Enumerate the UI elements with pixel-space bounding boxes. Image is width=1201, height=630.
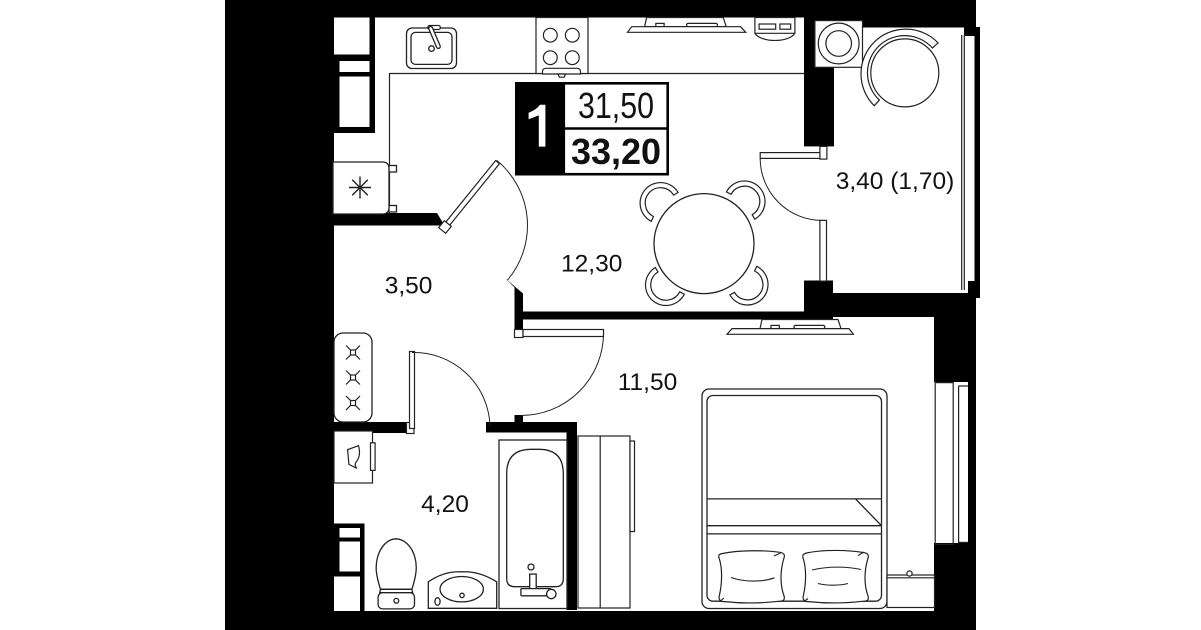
- svg-text:11,50: 11,50: [618, 369, 678, 396]
- svg-text:33,20: 33,20: [571, 131, 661, 172]
- svg-text:4,20: 4,20: [421, 491, 469, 518]
- svg-text:12,30: 12,30: [561, 251, 622, 278]
- svg-text:3,40 (1,70): 3,40 (1,70): [836, 168, 955, 195]
- svg-text:31,50: 31,50: [578, 85, 654, 126]
- svg-text:3,50: 3,50: [385, 273, 433, 300]
